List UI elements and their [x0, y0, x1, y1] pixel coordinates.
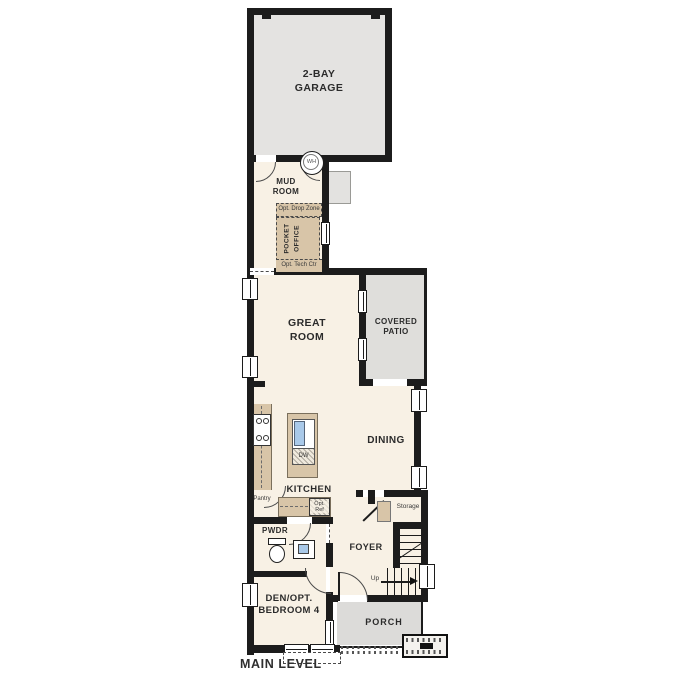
wall	[247, 571, 307, 577]
steps-hatch	[406, 650, 444, 654]
window	[242, 278, 258, 300]
storage-shelf	[377, 501, 391, 522]
den-label: DEN/OPT. BEDROOM 4	[256, 593, 322, 618]
patio-line2: PATIO	[383, 327, 408, 336]
garage-label: 2-BAY GARAGE	[288, 68, 350, 95]
wall	[371, 15, 380, 19]
opt-ref: Opt. Ref	[309, 498, 330, 516]
dining-label: DINING	[362, 434, 410, 447]
great-room-line1: GREAT	[288, 317, 326, 329]
window	[325, 620, 334, 645]
pantry-label: Pantry	[248, 496, 276, 503]
great-room-line2: ROOM	[290, 331, 324, 343]
powder-label: PWDR	[256, 526, 294, 536]
garage-label-line1: 2-BAY	[303, 68, 336, 80]
toilet-tank-icon	[268, 538, 286, 545]
walkway-dashes	[341, 651, 401, 654]
exterior-pad	[327, 171, 351, 204]
burner	[263, 435, 269, 441]
wall	[368, 490, 375, 504]
steps-mark	[420, 643, 433, 649]
optional-wall-dash	[250, 271, 274, 272]
walkway-dashes	[341, 646, 401, 649]
wall	[247, 381, 265, 387]
level-title: MAIN LEVEL	[240, 656, 370, 672]
front-door-leaf	[338, 572, 340, 601]
mud-room-label: MUD ROOM	[260, 177, 312, 198]
water-heater-icon: WH	[300, 151, 324, 175]
opt-tech-ctr-label: Opt. Tech Ctr	[276, 262, 322, 269]
island-fixtures: DW	[292, 419, 315, 465]
patio-slider-door	[358, 338, 367, 361]
steps-hatch	[406, 638, 444, 642]
wall	[359, 268, 427, 275]
storage-label: Storage	[392, 503, 424, 510]
arrow-head-icon	[410, 577, 418, 585]
mud-room-line1: MUD	[276, 177, 295, 186]
window	[411, 466, 427, 489]
sink-icon	[294, 421, 305, 446]
floor-plan: 2-BAY GARAGE WH MUD ROOM Opt. Drop Zone …	[0, 0, 687, 687]
wall	[326, 543, 333, 567]
patio-opening	[373, 379, 407, 386]
pocket-office-line2: OFFICE	[294, 218, 301, 260]
wall	[262, 15, 271, 19]
great-room-label: GREAT ROOM	[277, 317, 337, 344]
opt-drop-zone-label: Opt. Drop Zone	[276, 206, 322, 213]
wall	[247, 8, 254, 655]
dishwasher-label: DW	[293, 453, 314, 460]
patio-edge	[424, 268, 427, 386]
pocket-office-line1: POCKET	[284, 218, 291, 260]
stairs-up-arrow	[381, 581, 412, 583]
door-opening	[256, 155, 276, 162]
porch-label: PORCH	[360, 617, 408, 629]
garage-label-line2: GARAGE	[295, 82, 344, 94]
entry-steps	[402, 634, 448, 658]
stairs-upper-run	[400, 528, 421, 568]
opt-ref-label: Opt. Ref	[310, 501, 329, 513]
cased-opening-dash	[329, 524, 330, 543]
window	[321, 222, 330, 245]
foyer-label: FOYER	[343, 542, 389, 554]
kitchen-label: KITCHEN	[283, 484, 335, 496]
vanity-basin	[298, 544, 309, 554]
window	[411, 389, 427, 412]
den-line2: BEDROOM 4	[258, 605, 319, 616]
kitchen-island: DW	[287, 413, 318, 478]
burner	[256, 435, 262, 441]
water-heater-text: WH	[301, 159, 322, 165]
covered-patio-label: COVERED PATIO	[371, 317, 421, 338]
mud-room-line2: ROOM	[273, 187, 300, 196]
patio-line1: COVERED	[375, 317, 417, 326]
range-icon	[253, 414, 271, 446]
window	[242, 356, 258, 378]
door-opening	[287, 517, 312, 524]
den-line1: DEN/OPT.	[265, 593, 312, 604]
wall	[385, 8, 392, 162]
patio-slider-door	[358, 290, 367, 313]
wall	[322, 162, 329, 275]
window	[419, 564, 435, 589]
vanity-sink-icon	[293, 540, 315, 559]
burner	[263, 418, 269, 424]
wall	[247, 8, 392, 15]
upper-cabinet-dash	[280, 506, 308, 507]
toilet-icon	[269, 545, 285, 563]
dishwasher-icon: DW	[293, 448, 314, 464]
opt-ref-line2: Ref	[315, 507, 324, 513]
wall	[359, 268, 366, 386]
burner	[256, 418, 262, 424]
